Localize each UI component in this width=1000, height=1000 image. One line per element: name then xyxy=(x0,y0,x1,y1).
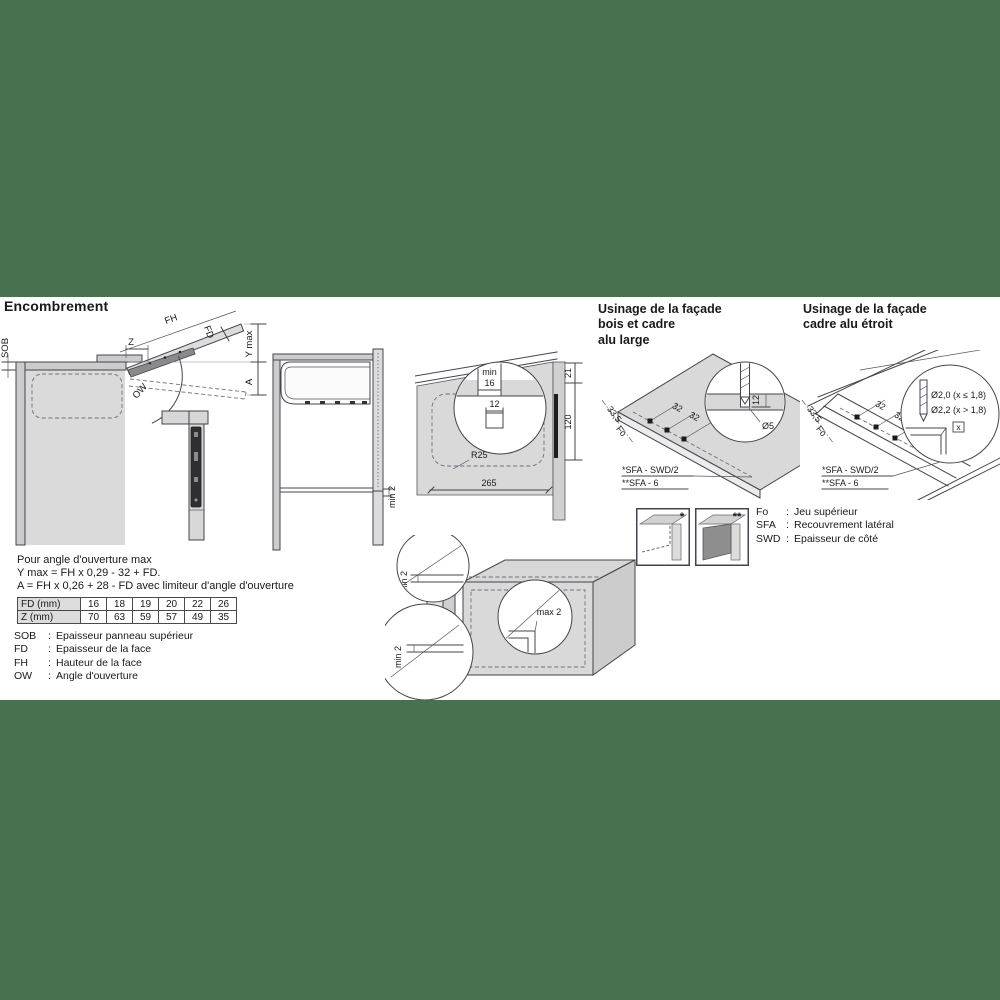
heading-line: Usinage de la façade xyxy=(803,302,927,317)
table-row: Z (mm) 70 63 59 57 49 35 xyxy=(18,611,237,624)
detail-circle-top xyxy=(397,535,469,602)
fd-z-table: FD (mm) 16 18 19 20 22 26 Z (mm) 70 63 5… xyxy=(17,597,237,624)
legend-right: Fo:Jeu supérieur SFA:Recouvrement latéra… xyxy=(756,506,894,546)
dim-fh: FH xyxy=(163,312,179,327)
heading-line: alu large xyxy=(598,333,722,348)
top-green-band xyxy=(0,0,1000,297)
cell: 18 xyxy=(107,598,133,611)
legend-abbr: Fo xyxy=(756,506,786,519)
bottom-green-band xyxy=(0,700,1000,1000)
legend-colon: : xyxy=(48,670,56,683)
dim-dia5: Ø5 xyxy=(762,421,774,431)
table-row: FD (mm) 16 18 19 20 22 26 xyxy=(18,598,237,611)
footnotes: *SFA - SWD/2 **SFA - 6 xyxy=(822,462,940,489)
formula-line: Pour angle d'ouverture max xyxy=(17,554,294,567)
drawing-facade-bois: 32 32 33,5 Fo 12 Ø5 *SFA - SWD/2 **SFA -… xyxy=(600,350,800,500)
drawing-facade-alu: 32 32 33,5 Fo x Ø2,0 (x ≤ 1,8) Ø2,2 (x >… xyxy=(800,350,1000,500)
dim-ymax: Y max xyxy=(244,330,255,357)
dim-265: 265 xyxy=(481,478,496,488)
dim-max2: max 2 xyxy=(537,607,562,617)
cell: 57 xyxy=(159,611,185,624)
legend-abbr: SWD xyxy=(756,533,786,546)
legend-abbr: SOB xyxy=(14,630,48,643)
heading-usinage-alu: Usinage de la façade cadre alu étroit xyxy=(803,302,927,333)
dim-12: 12 xyxy=(751,395,761,405)
legend-abbr: OW xyxy=(14,670,48,683)
legend-abbr: FD xyxy=(14,643,48,656)
cell: 16 xyxy=(81,598,107,611)
catalog-page: Encombrement xyxy=(0,0,1000,1000)
drawing-front-view xyxy=(158,405,238,545)
footnote-sfa-swd: *SFA - SWD/2 xyxy=(822,465,879,475)
dim-dia20: Ø2,0 (x ≤ 1,8) xyxy=(931,390,986,400)
cell: 49 xyxy=(185,611,211,624)
dim-335: 33,5 xyxy=(805,404,824,424)
dim-min2: min 2 xyxy=(387,486,397,508)
dim-sob: SOB xyxy=(0,338,11,358)
cabinet-section xyxy=(16,355,142,545)
cell: 35 xyxy=(211,611,237,624)
dim-min2-bottom: min 2 xyxy=(393,646,403,668)
row-header: Z (mm) xyxy=(18,611,81,624)
dim-z: Z xyxy=(128,337,134,348)
row-header: FD (mm) xyxy=(18,598,81,611)
footnote-sfa-6: **SFA - 6 xyxy=(622,478,659,488)
legend-abbr: FH xyxy=(14,657,48,670)
drawing-cabinet-gaps: min 2 min 2 max 2 xyxy=(385,535,645,705)
cell: 26 xyxy=(211,598,237,611)
cell: 63 xyxy=(107,611,133,624)
heading-line: bois et cadre xyxy=(598,317,722,332)
cell: 20 xyxy=(159,598,185,611)
door-open xyxy=(127,324,244,377)
dim-32: 32 xyxy=(874,399,888,413)
dim-fo: Fo xyxy=(814,424,828,438)
dim-a: A xyxy=(244,378,255,385)
legend-desc: Epaisseur de la face xyxy=(56,643,193,656)
heading-line: Usinage de la façade xyxy=(598,302,722,317)
double-star-marker: ** xyxy=(733,511,742,523)
formula-line: Y max = FH x 0,29 - 32 + FD. xyxy=(17,567,294,580)
legend-desc: Epaisseur panneau supérieur xyxy=(56,630,193,643)
legend-colon: : xyxy=(786,533,794,546)
legend-colon: : xyxy=(48,657,56,670)
footnote-sfa-swd: *SFA - SWD/2 xyxy=(622,465,679,475)
thumbnail-inset-door: ** xyxy=(695,508,749,566)
dim-dia22: Ø2,2 (x > 1,8) xyxy=(931,405,986,415)
dim-16: 16 xyxy=(484,378,494,388)
cell: 70 xyxy=(81,611,107,624)
legend-desc: Recouvrement latéral xyxy=(794,519,894,532)
dim-12: 12 xyxy=(489,399,499,409)
lift-arm-bracket xyxy=(281,362,370,404)
dim-min: min xyxy=(482,367,497,377)
legend-desc: Jeu supérieur xyxy=(794,506,894,519)
dim-120: 120 xyxy=(563,414,573,429)
legend-colon: : xyxy=(786,519,794,532)
lift-mechanism xyxy=(191,427,201,507)
star-marker: * xyxy=(680,511,685,523)
legend-colon: : xyxy=(48,630,56,643)
footnote-sfa-6: **SFA - 6 xyxy=(822,478,859,488)
heading-line: cadre alu étroit xyxy=(803,317,927,332)
legend-desc: Hauteur de la face xyxy=(56,657,193,670)
legend-colon: : xyxy=(48,643,56,656)
dim-21: 21 xyxy=(563,368,573,378)
legend-desc: Epaisseur de côté xyxy=(794,533,894,546)
legend-colon: : xyxy=(786,506,794,519)
formula-block: Pour angle d'ouverture max Y max = FH x … xyxy=(17,554,294,594)
cell: 19 xyxy=(133,598,159,611)
legend-desc: Angle d'ouverture xyxy=(56,670,193,683)
legend-abbr: SFA xyxy=(756,519,786,532)
drawing-niche: R25 265 21 120 min 16 12 xyxy=(415,350,600,525)
formula-line: A = FH x 0,26 + 28 - FD avec limiteur d'… xyxy=(17,580,294,593)
cell: 22 xyxy=(185,598,211,611)
dim-ow: OW xyxy=(131,382,150,402)
heading-usinage-bois: Usinage de la façade bois et cadre alu l… xyxy=(598,302,722,348)
drawing-side-section: min 2 xyxy=(265,345,400,555)
legend-left: SOB:Epaisseur panneau supérieur FD:Epais… xyxy=(14,630,193,683)
detail-circle xyxy=(454,362,546,454)
cell: 59 xyxy=(133,611,159,624)
dim-fo: Fo xyxy=(614,424,628,438)
